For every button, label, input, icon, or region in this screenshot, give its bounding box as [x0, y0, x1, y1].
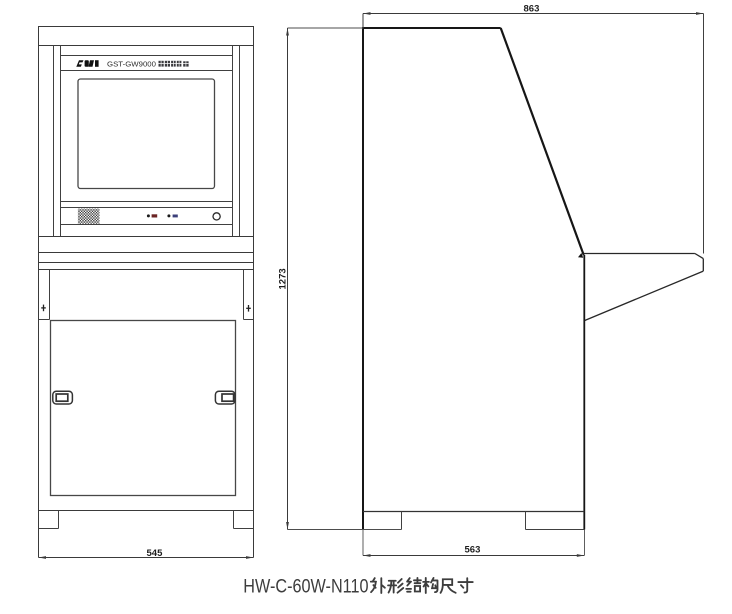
- svg-text:1273: 1273: [278, 268, 289, 289]
- svg-text:563: 563: [465, 544, 481, 555]
- svg-text:545: 545: [147, 548, 164, 559]
- svg-text:GST-GW9000: GST-GW9000: [107, 60, 156, 69]
- svg-text:863: 863: [524, 4, 540, 15]
- svg-text:HW-C-60W-N110: HW-C-60W-N110: [243, 577, 368, 598]
